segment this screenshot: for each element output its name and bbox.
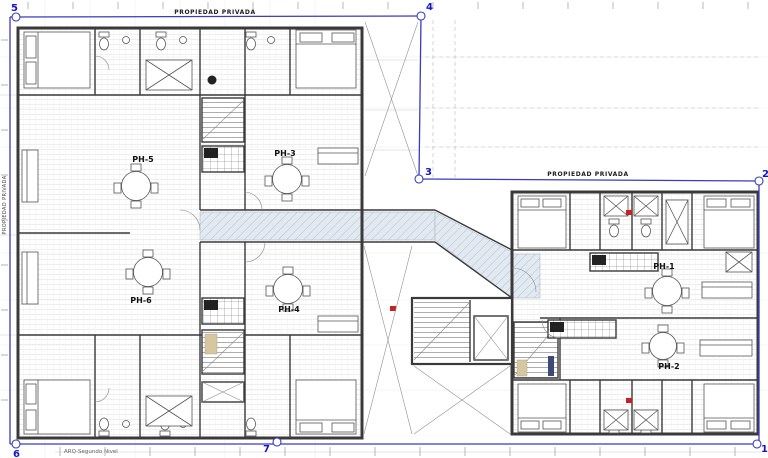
toilet bbox=[99, 418, 109, 436]
sofa bbox=[702, 282, 752, 298]
red-marker bbox=[626, 398, 632, 403]
wardrobe bbox=[726, 252, 752, 272]
svg-text:1: 1 bbox=[761, 444, 768, 455]
toilet bbox=[609, 219, 619, 237]
svg-text:6: 6 bbox=[13, 449, 20, 458]
sink bbox=[268, 37, 275, 44]
stairs-upper bbox=[202, 98, 244, 142]
unit-label-ph2: PH-2 bbox=[658, 362, 679, 371]
sink bbox=[123, 37, 130, 44]
svg-text:3: 3 bbox=[425, 167, 432, 178]
sink bbox=[180, 37, 187, 44]
sofa bbox=[22, 150, 38, 202]
shower bbox=[604, 196, 628, 216]
wardrobe bbox=[202, 382, 244, 402]
toilet bbox=[246, 32, 256, 50]
red-marker bbox=[626, 210, 632, 215]
plan-title: ARQ-Segundo Nivel bbox=[64, 449, 118, 455]
bed bbox=[704, 384, 754, 432]
svg-text:4: 4 bbox=[426, 2, 433, 13]
column bbox=[208, 76, 217, 85]
shower bbox=[146, 396, 192, 426]
bed bbox=[296, 30, 356, 88]
toilet bbox=[156, 32, 166, 50]
stairs-lower bbox=[202, 330, 244, 374]
unit-label-ph3: PH-3 bbox=[274, 149, 295, 158]
bed bbox=[518, 196, 566, 248]
shower bbox=[634, 410, 658, 430]
bed bbox=[518, 384, 566, 432]
unit-label-ph5: PH-5 bbox=[132, 155, 154, 164]
red-marker bbox=[390, 306, 396, 311]
bed bbox=[24, 32, 90, 88]
svg-text:7: 7 bbox=[263, 444, 270, 455]
shower bbox=[604, 410, 628, 430]
sofa bbox=[700, 340, 752, 356]
unit-label-ph4: PH-4 bbox=[278, 305, 300, 314]
bed bbox=[296, 380, 356, 434]
sofa bbox=[22, 252, 38, 304]
kitchen-counter bbox=[202, 146, 244, 172]
toilet bbox=[246, 418, 256, 436]
unit-label-ph6: PH-6 bbox=[130, 296, 152, 305]
toilet bbox=[99, 32, 109, 50]
propiedad-privada-label-top: PROPIEDAD PRIVADA bbox=[174, 9, 256, 16]
unit-label-ph1: PH-1 bbox=[653, 262, 675, 271]
kitchen-counter bbox=[590, 253, 658, 271]
floor-plan: 5 4 3 2 1 7 6 PROPIEDAD PRIVADA PROPIEDA… bbox=[0, 0, 768, 458]
shower bbox=[634, 196, 658, 216]
boundary-marker-6: 6 bbox=[12, 440, 20, 458]
toilet bbox=[641, 219, 651, 237]
sofa bbox=[318, 148, 358, 164]
propiedad-privada-label-left: PROPIEDAD PRIVADA bbox=[2, 175, 8, 234]
svg-text:5: 5 bbox=[11, 3, 18, 14]
elevator-shaft bbox=[474, 316, 508, 360]
core-stairwell bbox=[412, 298, 512, 364]
sofa bbox=[318, 316, 358, 332]
propiedad-privada-label-right: PROPIEDAD PRIVADA bbox=[547, 171, 629, 178]
floor-plan-page: 5 4 3 2 1 7 6 PROPIEDAD PRIVADA PROPIEDA… bbox=[0, 0, 768, 458]
svg-text:2: 2 bbox=[762, 169, 768, 180]
kitchen-counter bbox=[202, 298, 244, 324]
sink bbox=[123, 421, 130, 428]
bed bbox=[24, 380, 90, 434]
wardrobe bbox=[666, 200, 688, 244]
kitchen-counter bbox=[548, 320, 616, 338]
shower bbox=[146, 60, 192, 90]
bed bbox=[704, 196, 754, 248]
